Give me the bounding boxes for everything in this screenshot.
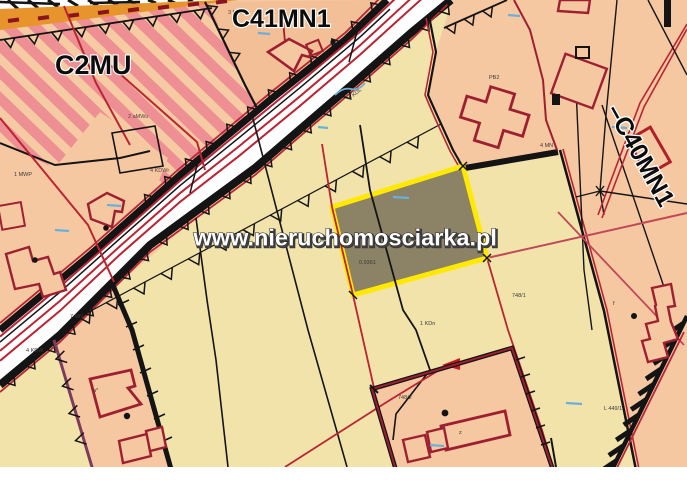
svg-text:C2MU: C2MU	[55, 50, 132, 80]
svg-text:1 MWP: 1 MWP	[14, 172, 32, 178]
svg-text:www.nieruchomosciarka.pl: www.nieruchomosciarka.pl	[193, 225, 497, 251]
svg-text:1 KDn: 1 KDn	[420, 321, 435, 327]
svg-text:748/1: 748/1	[512, 293, 526, 299]
svg-text:0.9361: 0.9361	[359, 260, 376, 266]
svg-text:4 KDW: 4 KDW	[26, 348, 44, 354]
svg-text:C41MN1: C41MN1	[232, 5, 331, 33]
svg-text:PB2: PB2	[489, 75, 499, 81]
svg-text:7 MN: 7 MN	[70, 314, 83, 320]
svg-text:2 aMWu: 2 aMWu	[128, 114, 148, 120]
svg-text:L 449/1: L 449/1	[604, 406, 622, 412]
svg-text:748/2: 748/2	[398, 395, 412, 401]
svg-text:4 KDWr: 4 KDWr	[150, 168, 169, 174]
svg-text:4 MN: 4 MN	[540, 143, 553, 149]
svg-text:a*: a*	[93, 388, 99, 394]
svg-text:z: z	[459, 430, 462, 436]
